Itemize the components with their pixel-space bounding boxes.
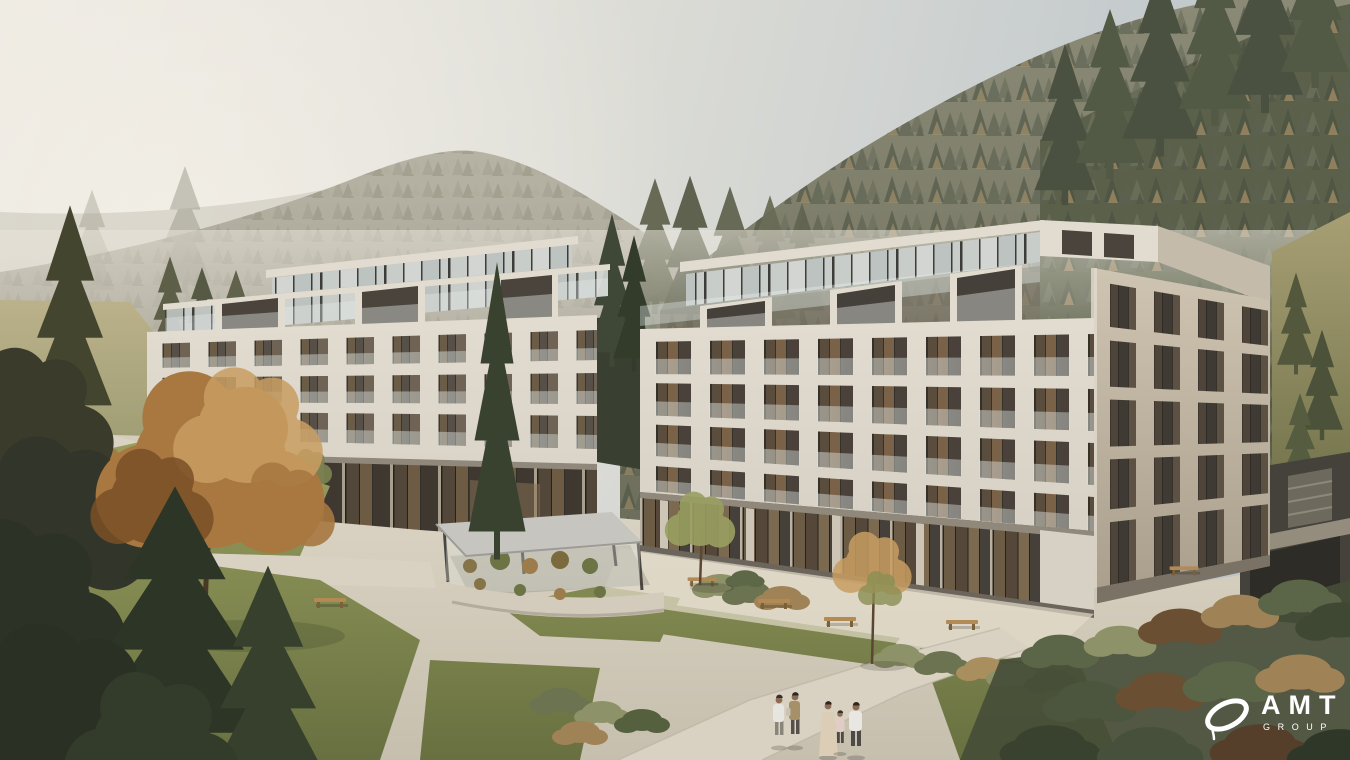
architectural-render: AMT GROUP (0, 0, 1350, 760)
right-building-side-face (1091, 268, 1270, 604)
logo-swoosh-icon (1200, 692, 1256, 744)
logo-title: AMT (1261, 692, 1343, 719)
corner-pillar (1040, 530, 1094, 612)
scene-canvas (0, 0, 1350, 760)
logo: AMT GROUP (1200, 692, 1343, 744)
logo-subtitle: GROUP (1261, 723, 1343, 732)
logo-text: AMT GROUP (1261, 692, 1343, 732)
